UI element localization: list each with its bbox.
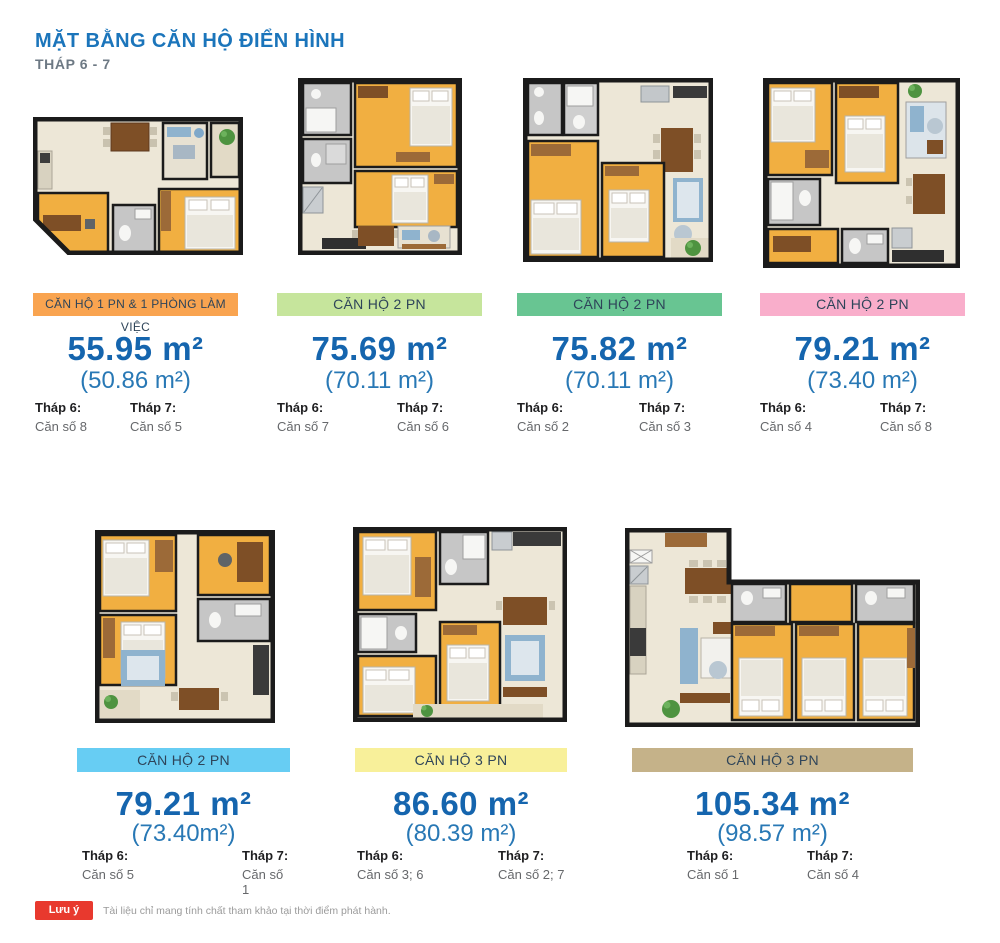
note-badge: Lưu ý (35, 901, 93, 920)
tower-info: Tháp 6: Căn số 8 Tháp 7: Căn số 5 (33, 400, 238, 440)
apartment-card-5: CĂN HỘ 2 PN 79.21 m² (73.40m²) Tháp 6: C… (77, 527, 290, 897)
area-main: 86.60 m² (355, 785, 567, 823)
tower-info: Tháp 6: Căn số 5 Tháp 7: Căn số 1 (77, 848, 290, 888)
apartment-card-2: CĂN HỘ 2 PN 75.69 m² (70.11 m²) Tháp 6: … (277, 78, 482, 448)
tower7-unit: Căn số 8 (880, 419, 932, 434)
area-main: 79.21 m² (760, 330, 965, 368)
tower6-label: Tháp 6: (517, 400, 569, 415)
area-main: 79.21 m² (77, 785, 290, 823)
tower6-info: Tháp 6: Căn số 5 (82, 848, 134, 882)
tower7-unit: Căn số 3 (639, 419, 691, 434)
tower-info: Tháp 6: Căn số 1 Tháp 7: Căn số 4 (632, 848, 913, 888)
tower6-label: Tháp 6: (357, 848, 424, 863)
tower6-info: Tháp 6: Căn số 2 (517, 400, 569, 434)
tower7-unit: Căn số 2; 7 (498, 867, 565, 882)
tower6-unit: Căn số 7 (277, 419, 329, 434)
tower6-label: Tháp 6: (35, 400, 87, 415)
tower7-info: Tháp 7: Căn số 8 (880, 400, 932, 434)
tower-info: Tháp 6: Căn số 4 Tháp 7: Căn số 8 (760, 400, 965, 440)
tower7-info: Tháp 7: Căn số 4 (807, 848, 859, 882)
floor-plan-1 (33, 117, 243, 255)
page-subtitle: THÁP 6 - 7 (35, 56, 345, 72)
brochure-page: MẶT BẰNG CĂN HỘ ĐIỂN HÌNH THÁP 6 - 7 (0, 0, 1000, 943)
tower7-label: Tháp 7: (498, 848, 565, 863)
area-sub: (70.11 m²) (277, 367, 482, 395)
tower7-label: Tháp 7: (639, 400, 691, 415)
tower6-info: Tháp 6: Căn số 3; 6 (357, 848, 424, 882)
tower7-label: Tháp 7: (130, 400, 182, 415)
unit-type-banner: CĂN HỘ 3 PN (632, 748, 913, 772)
header: MẶT BẰNG CĂN HỘ ĐIỂN HÌNH THÁP 6 - 7 (35, 30, 345, 72)
tower6-unit: Căn số 4 (760, 419, 812, 434)
tower6-label: Tháp 6: (277, 400, 329, 415)
floor-plan-3 (523, 78, 713, 262)
tower7-unit: Căn số 6 (397, 419, 449, 434)
unit-type-banner: CĂN HỘ 2 PN (277, 293, 482, 316)
unit-type-banner: CĂN HỘ 3 PN (355, 748, 567, 772)
area-main: 105.34 m² (632, 785, 913, 823)
area-sub: (73.40m²) (77, 820, 290, 848)
floor-plan-4 (763, 78, 960, 268)
tower7-label: Tháp 7: (807, 848, 859, 863)
area-sub: (73.40 m²) (760, 367, 965, 395)
tower7-label: Tháp 7: (397, 400, 449, 415)
unit-type-banner: CĂN HỘ 2 PN (760, 293, 965, 316)
tower6-label: Tháp 6: (760, 400, 812, 415)
note-text: Tài liệu chỉ mang tính chất tham khảo tạ… (103, 905, 391, 917)
tower7-info: Tháp 7: Căn số 1 (242, 848, 290, 897)
tower6-unit: Căn số 8 (35, 419, 87, 434)
tower7-info: Tháp 7: Căn số 6 (397, 400, 449, 434)
apartment-card-4: CĂN HỘ 2 PN 79.21 m² (73.40 m²) Tháp 6: … (760, 78, 965, 448)
tower-info: Tháp 6: Căn số 2 Tháp 7: Căn số 3 (517, 400, 722, 440)
tower-info: Tháp 6: Căn số 3; 6 Tháp 7: Căn số 2; 7 (355, 848, 567, 888)
tower7-label: Tháp 7: (880, 400, 932, 415)
area-sub: (50.86 m²) (33, 367, 238, 395)
apartment-card-7: CĂN HỘ 3 PN 105.34 m² (98.57 m²) Tháp 6:… (632, 527, 913, 897)
tower6-label: Tháp 6: (82, 848, 134, 863)
tower7-info: Tháp 7: Căn số 5 (130, 400, 182, 434)
tower6-info: Tháp 6: Căn số 4 (760, 400, 812, 434)
apartment-card-6: CĂN HỘ 3 PN 86.60 m² (80.39 m²) Tháp 6: … (355, 527, 567, 897)
tower6-info: Tháp 6: Căn số 1 (687, 848, 739, 882)
tower6-label: Tháp 6: (687, 848, 739, 863)
tower6-unit: Căn số 2 (517, 419, 569, 434)
tower7-info: Tháp 7: Căn số 3 (639, 400, 691, 434)
area-main: 75.82 m² (517, 330, 722, 368)
tower7-unit: Căn số 5 (130, 419, 182, 434)
area-sub: (98.57 m²) (632, 820, 913, 848)
area-sub: (80.39 m²) (355, 820, 567, 848)
tower7-label: Tháp 7: (242, 848, 290, 863)
floor-plan-5 (95, 530, 275, 723)
area-main: 75.69 m² (277, 330, 482, 368)
tower-info: Tháp 6: Căn số 7 Tháp 7: Căn số 6 (277, 400, 482, 440)
tower6-unit: Căn số 3; 6 (357, 867, 424, 882)
tower7-unit: Căn số 1 (242, 867, 290, 897)
area-sub: (70.11 m²) (517, 367, 722, 395)
unit-type-banner: CĂN HỘ 2 PN (77, 748, 290, 772)
tower6-info: Tháp 6: Căn số 8 (35, 400, 87, 434)
unit-type-banner: CĂN HỘ 2 PN (517, 293, 722, 316)
floor-plan-7 (625, 528, 920, 727)
tower7-unit: Căn số 4 (807, 867, 859, 882)
apartment-card-1: CĂN HỘ 1 PN & 1 PHÒNG LÀM VIỆC 55.95 m² … (33, 78, 238, 448)
tower6-info: Tháp 6: Căn số 7 (277, 400, 329, 434)
tower6-unit: Căn số 5 (82, 867, 134, 882)
floor-plan-6 (353, 527, 567, 722)
area-main: 55.95 m² (33, 330, 238, 368)
apartment-card-3: CĂN HỘ 2 PN 75.82 m² (70.11 m²) Tháp 6: … (517, 78, 722, 448)
tower7-info: Tháp 7: Căn số 2; 7 (498, 848, 565, 882)
page-title: MẶT BẰNG CĂN HỘ ĐIỂN HÌNH (35, 30, 345, 53)
tower6-unit: Căn số 1 (687, 867, 739, 882)
unit-type-banner: CĂN HỘ 1 PN & 1 PHÒNG LÀM VIỆC (33, 293, 238, 316)
floor-plan-2 (298, 78, 462, 255)
